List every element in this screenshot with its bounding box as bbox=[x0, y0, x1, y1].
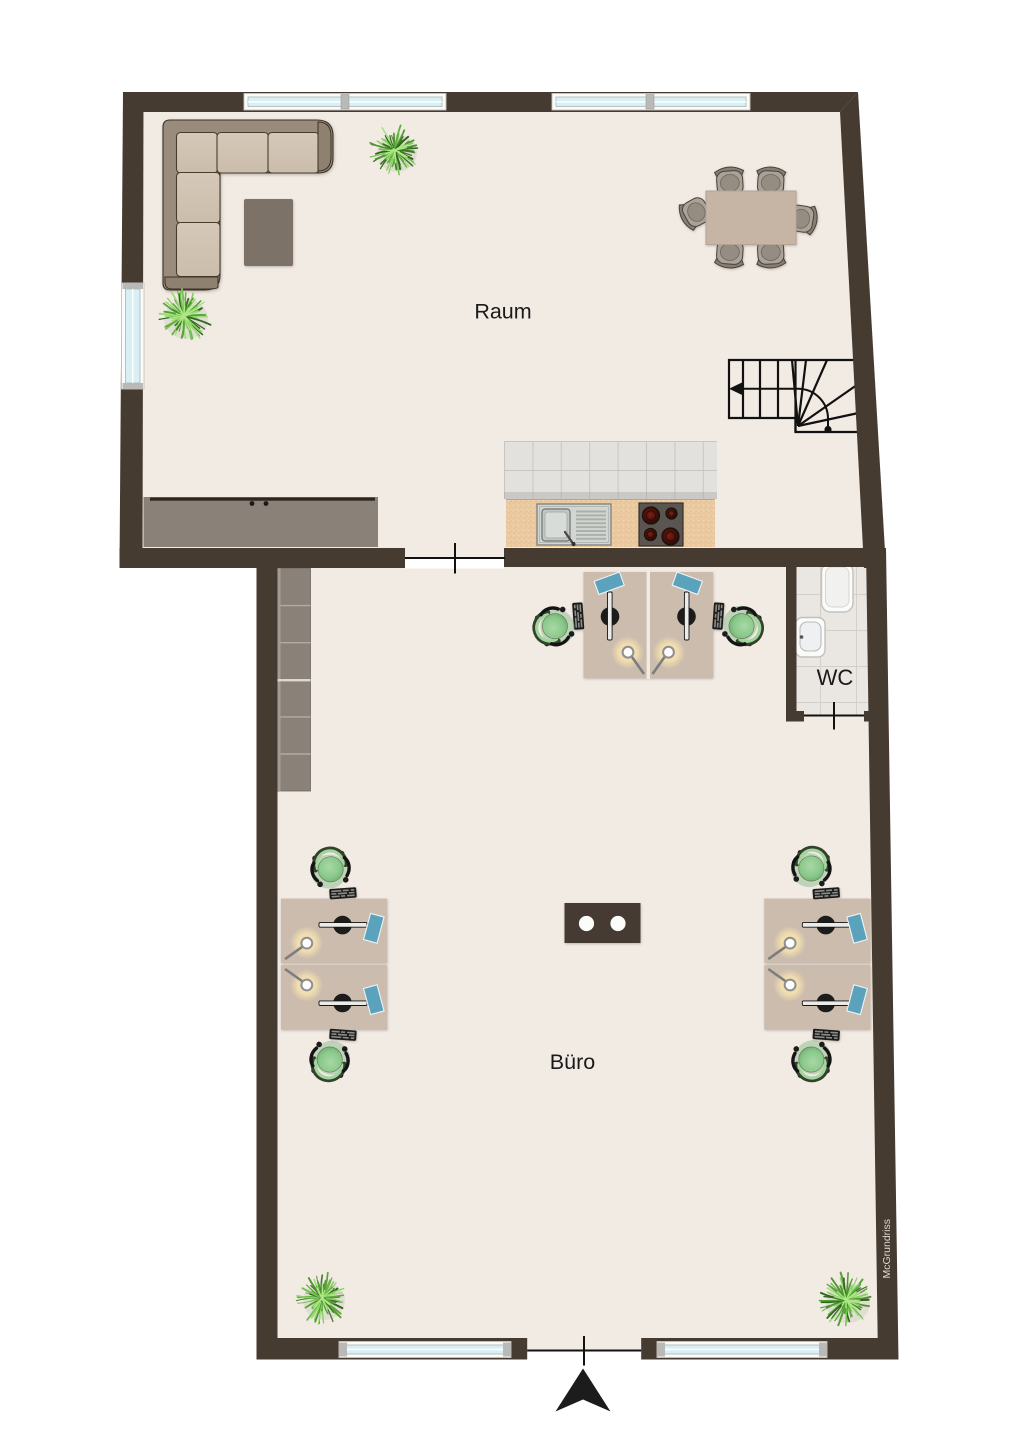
svg-text:Raum: Raum bbox=[474, 300, 531, 324]
svg-text:WC: WC bbox=[817, 665, 854, 690]
svg-text:Büro: Büro bbox=[550, 1050, 595, 1074]
svg-text:McGrundriss: McGrundriss bbox=[881, 1219, 893, 1279]
